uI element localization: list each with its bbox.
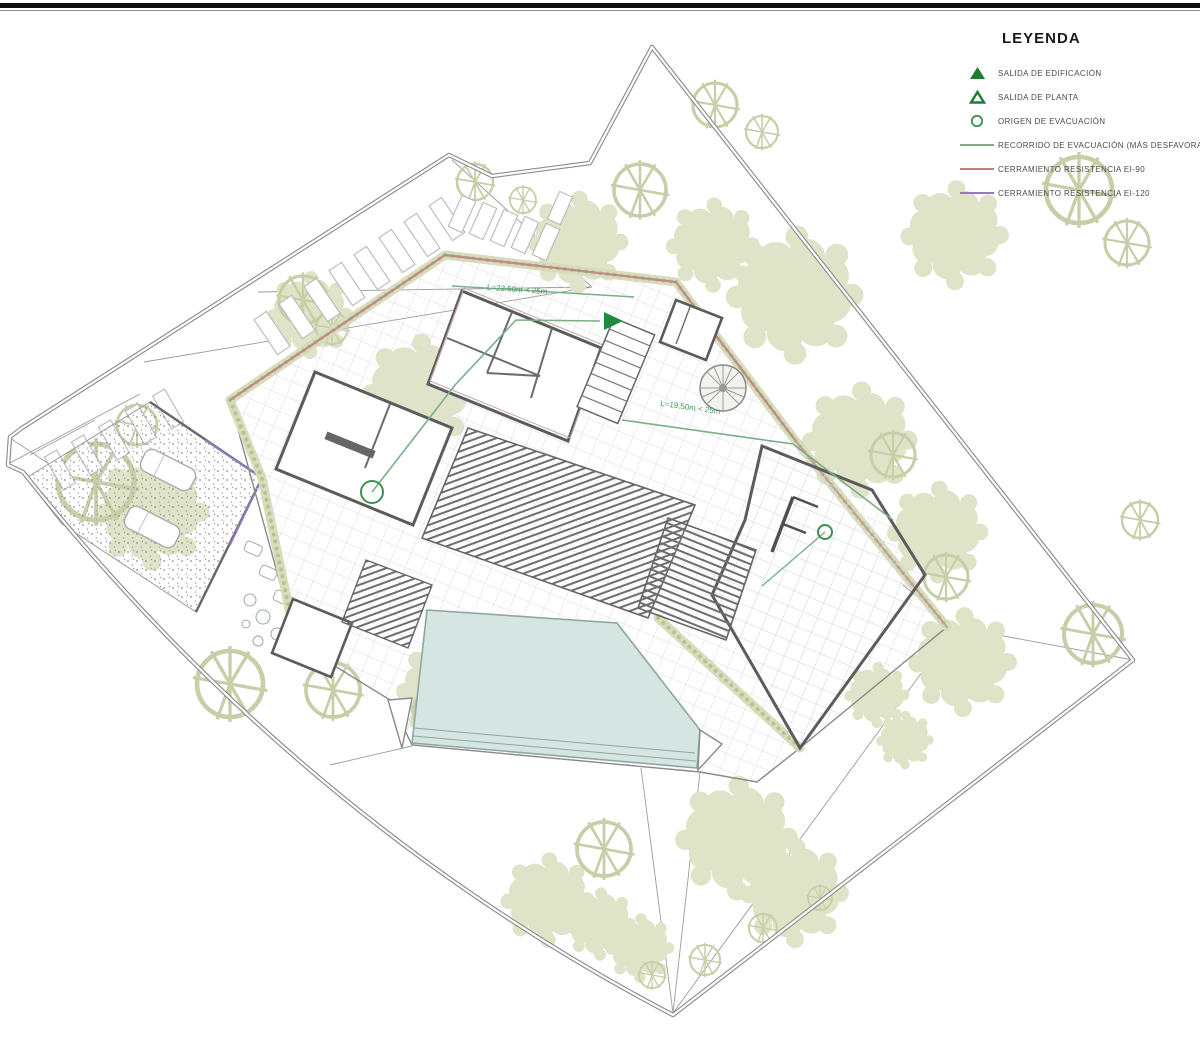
- legend-row: SALIDA DE PLANTA: [956, 85, 1200, 109]
- tree-icon: [611, 160, 670, 220]
- tree-icon: [876, 711, 934, 770]
- ei90-line-swatch: [956, 168, 998, 170]
- tree-icon: [1102, 218, 1152, 269]
- tree-icon: [1120, 499, 1161, 540]
- legend-label: SALIDA DE EDIFICACIÓN: [998, 69, 1102, 78]
- tree-icon: [508, 185, 537, 215]
- legend-row: RECORRIDO DE EVACUACIÓN (MÁS DESFAVORABL…: [956, 133, 1200, 157]
- tree-icon: [688, 943, 722, 978]
- legend-row: CERRAMIENTO RESISTENCIA EI-90: [956, 157, 1200, 181]
- page: { "page": { "background": "#ffffff", "to…: [0, 0, 1200, 1037]
- legend-label: CERRAMIENTO RESISTENCIA EI-90: [998, 165, 1145, 174]
- legend-label: SALIDA DE PLANTA: [998, 93, 1079, 102]
- tree-icon: [744, 114, 780, 151]
- legend-label: CERRAMIENTO RESISTENCIA EI-120: [998, 189, 1150, 198]
- evacuation-origin-icon: [956, 114, 998, 128]
- legend-row: ORIGEN DE EVACUACIÓN: [956, 109, 1200, 133]
- tree-icon: [193, 646, 267, 722]
- legend-row: CERRAMIENTO RESISTENCIA EI-120: [956, 181, 1200, 205]
- legend-title: LEYENDA: [1002, 30, 1200, 47]
- legend: LEYENDA SALIDA DE EDIFICACIÓN SALIDA DE …: [956, 24, 1200, 205]
- spiral-stair: [700, 365, 746, 411]
- legend-label: RECORRIDO DE EVACUACIÓN (MÁS DESFAVORABL…: [998, 141, 1200, 150]
- legend-row: SALIDA DE EDIFICACIÓN: [956, 61, 1200, 85]
- ei120-line-swatch: [956, 192, 998, 194]
- legend-label: ORIGEN DE EVACUACIÓN: [998, 117, 1105, 126]
- floor-exit-icon: [956, 90, 998, 104]
- route-line-swatch: [956, 144, 998, 146]
- tree-icon: [666, 197, 760, 292]
- building-exit-icon: [956, 66, 998, 80]
